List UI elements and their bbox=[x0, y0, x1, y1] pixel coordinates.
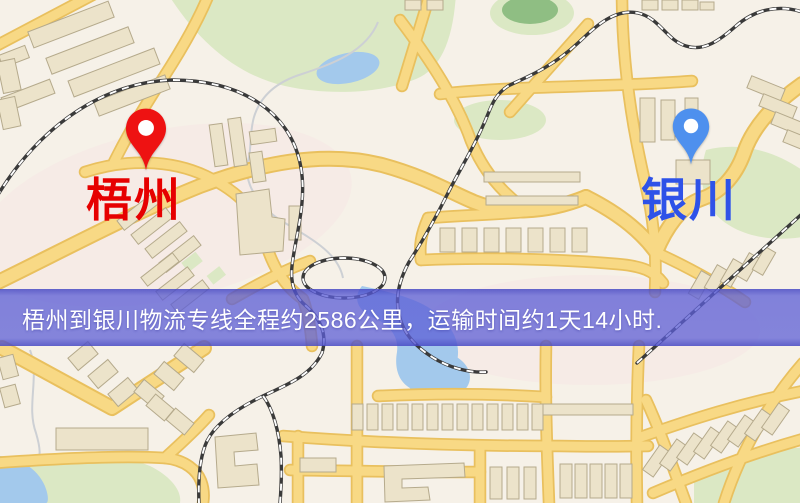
map-pin-icon bbox=[671, 106, 711, 168]
route-info-text: 梧州到银川物流专线全程约2586公里，运输时间约1天14小时. bbox=[0, 301, 662, 335]
origin-pin[interactable] bbox=[124, 106, 168, 174]
pin-hole bbox=[684, 119, 698, 133]
logistics-route-map: 梧州 银川 梧州到银川物流专线全程约2586公里，运输时间约1天14小时. bbox=[0, 0, 800, 503]
map-canvas bbox=[0, 0, 800, 503]
destination-city-label: 银川 bbox=[641, 177, 737, 223]
destination-pin[interactable] bbox=[671, 106, 711, 168]
pin-body bbox=[673, 109, 709, 165]
origin-city-label: 梧州 bbox=[86, 177, 182, 223]
route-info-banner: 梧州到银川物流专线全程约2586公里，运输时间约1天14小时. bbox=[0, 289, 800, 346]
map-pin-icon bbox=[124, 106, 168, 174]
pin-hole bbox=[138, 120, 154, 136]
pin-body bbox=[126, 109, 166, 171]
